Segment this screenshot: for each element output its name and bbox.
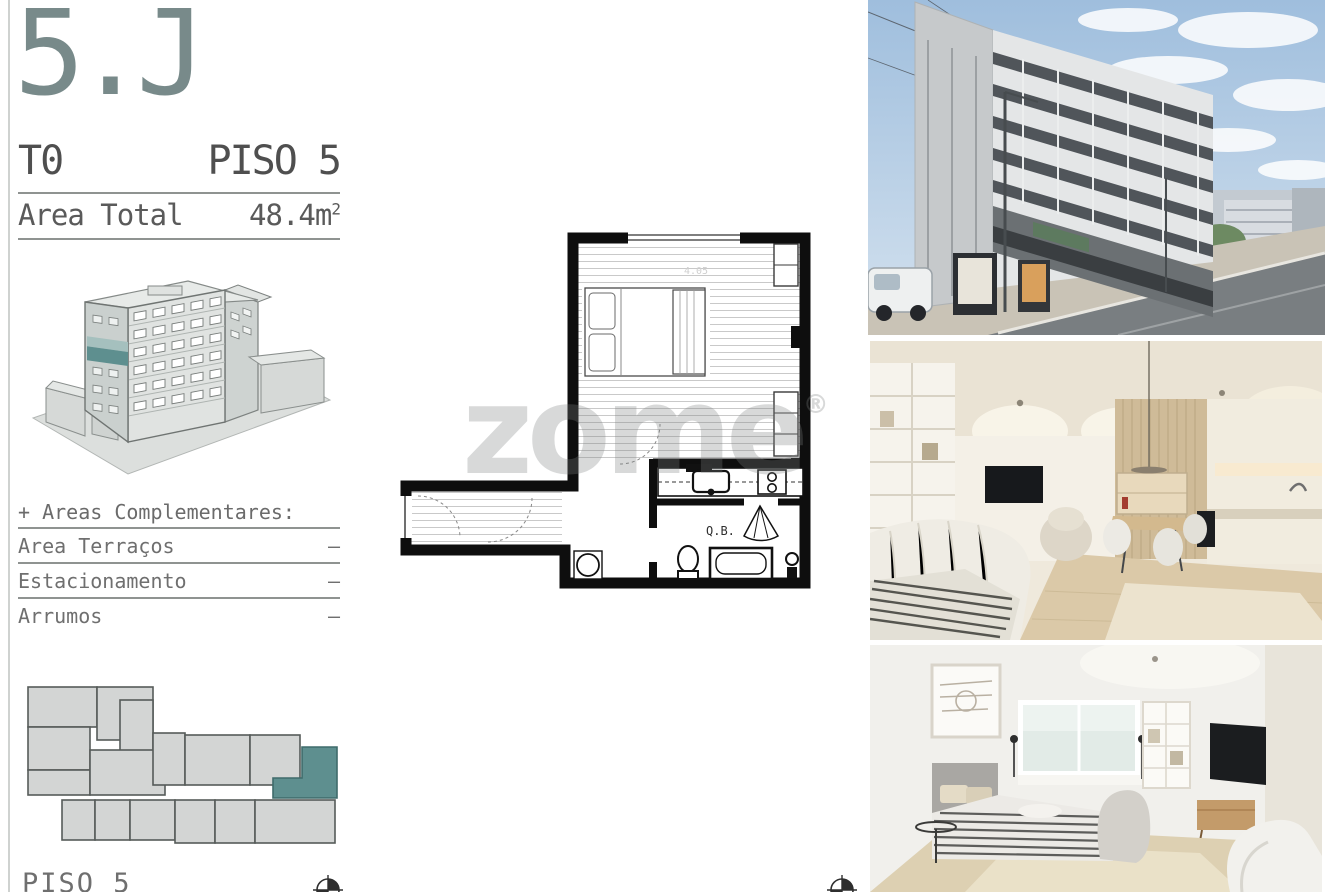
divider bbox=[18, 527, 340, 529]
complementary-row: Area Terraços – bbox=[18, 534, 340, 558]
row-value: – bbox=[328, 569, 340, 593]
row-label: Area Terraços bbox=[18, 534, 175, 558]
row-label: Arrumos bbox=[18, 604, 102, 628]
area-total-value: 48.4m2 bbox=[249, 198, 340, 232]
complementary-row: Estacionamento – bbox=[18, 569, 340, 593]
row-value: – bbox=[328, 604, 340, 628]
dimension-label: 4.05 bbox=[684, 266, 708, 277]
left-margin-rule bbox=[8, 0, 10, 892]
bathroom-label: Q.B. bbox=[706, 524, 735, 538]
divider bbox=[18, 238, 340, 240]
floor-label: PISO 5 bbox=[208, 138, 341, 184]
divider bbox=[18, 562, 340, 564]
area-total-label: Area Total bbox=[18, 198, 183, 232]
photo-bedroom bbox=[870, 645, 1322, 892]
complementary-areas-heading: + Areas Complementares: bbox=[18, 500, 295, 524]
typology-label: T0 bbox=[18, 138, 62, 184]
compass-icon bbox=[312, 874, 344, 892]
brochure-page: 5.J T0 PISO 5 Area Total 48.4m2 bbox=[0, 0, 1344, 892]
unit-code: 5.J bbox=[14, 0, 197, 122]
photo-living-room bbox=[870, 341, 1322, 640]
row-value: – bbox=[328, 534, 340, 558]
key-floor-plan bbox=[20, 678, 350, 850]
complementary-row: Arrumos – bbox=[18, 604, 340, 628]
key-plan-caption: PISO 5 bbox=[22, 868, 132, 892]
compass-icon bbox=[826, 874, 858, 892]
row-label: Estacionamento bbox=[18, 569, 187, 593]
divider bbox=[18, 597, 340, 599]
building-3d-illustration bbox=[28, 250, 342, 484]
photo-building-exterior bbox=[868, 0, 1325, 335]
divider bbox=[18, 192, 340, 194]
floor-plan: 4.05 Q.B. bbox=[388, 230, 850, 616]
